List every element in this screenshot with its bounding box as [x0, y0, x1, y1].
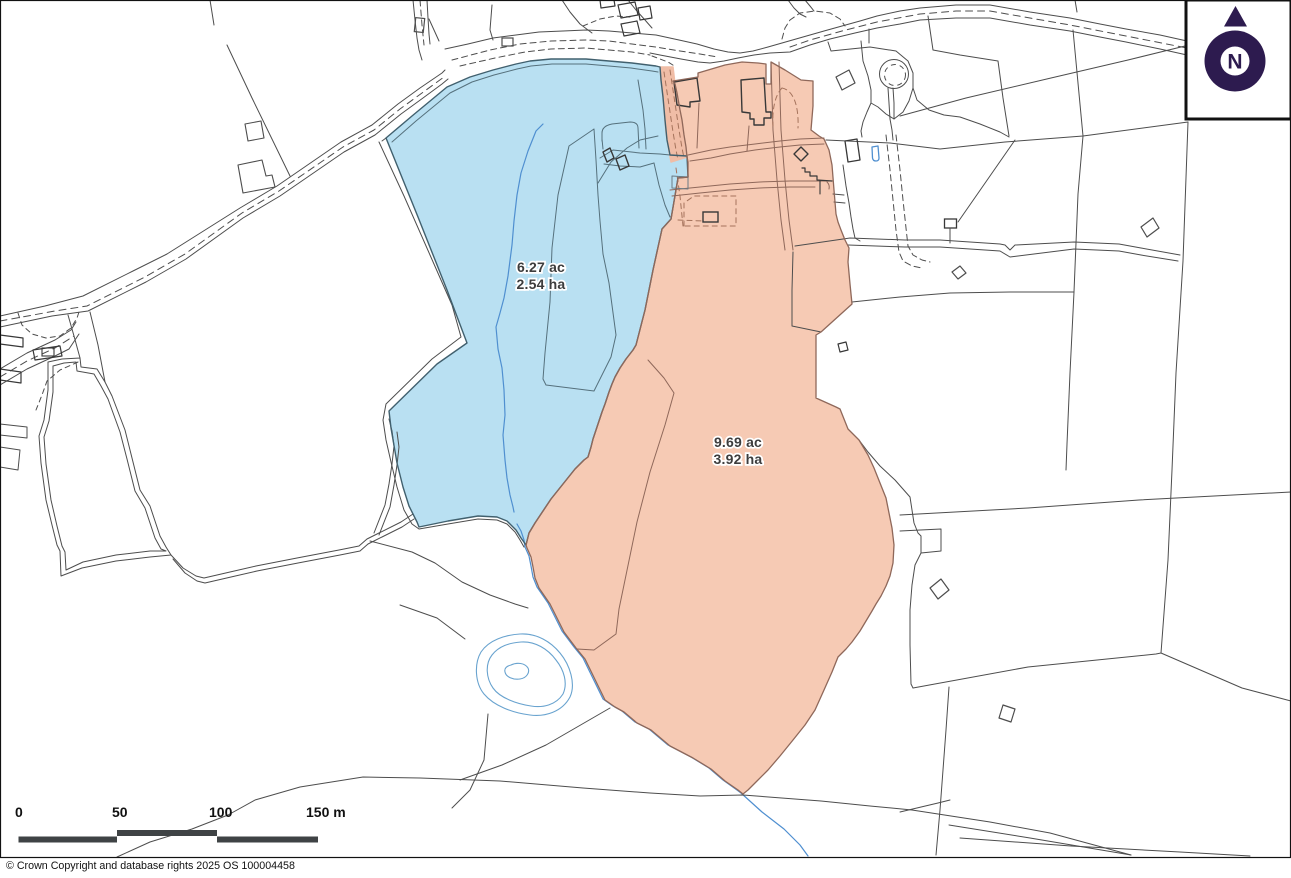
svg-text:2.54 ha: 2.54 ha — [517, 276, 566, 292]
svg-text:N: N — [1227, 51, 1242, 74]
svg-text:6.27 ac: 6.27 ac — [517, 259, 565, 275]
svg-text:© Crown Copyright and database: © Crown Copyright and database rights 20… — [6, 860, 295, 872]
svg-text:3.92 ha: 3.92 ha — [714, 451, 763, 467]
svg-text:50: 50 — [112, 804, 128, 820]
svg-text:0: 0 — [15, 804, 23, 820]
svg-text:9.69 ac: 9.69 ac — [714, 434, 762, 450]
svg-text:100: 100 — [209, 804, 233, 820]
svg-text:150 m: 150 m — [306, 804, 346, 820]
